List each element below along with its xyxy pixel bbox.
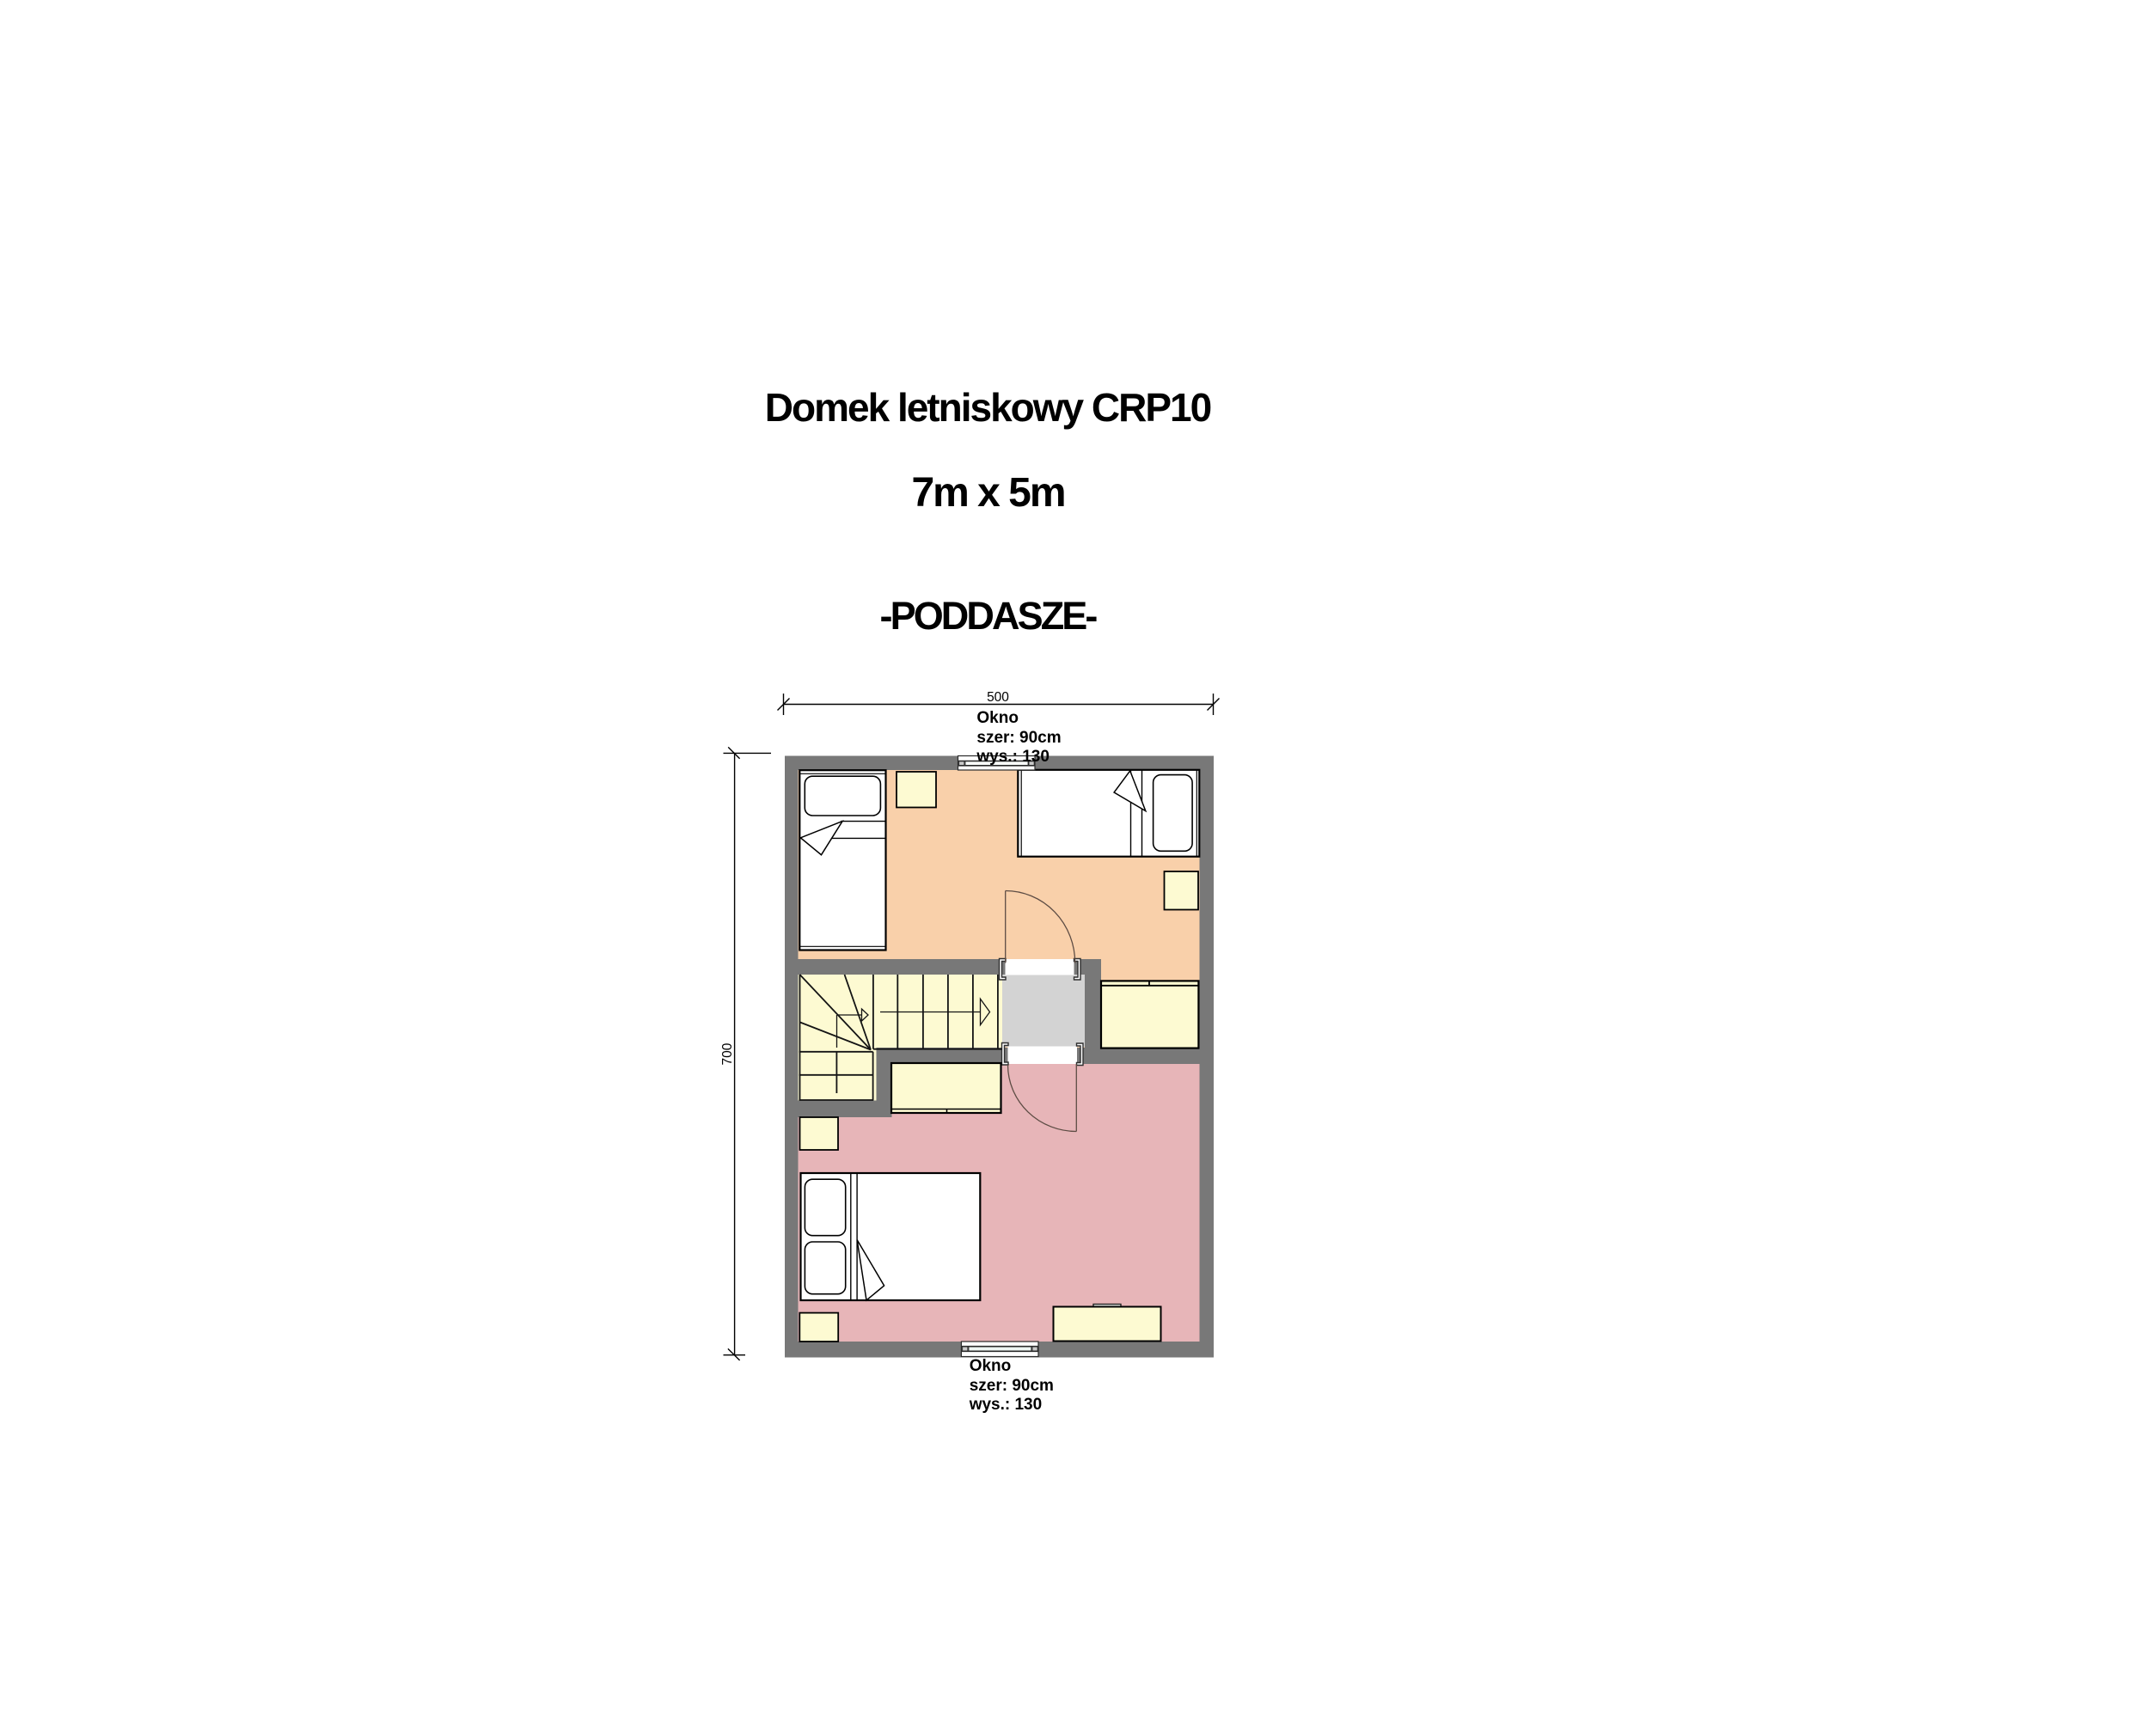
svg-text:szer: 90cm: szer: 90cm	[970, 1377, 1054, 1395]
svg-text:500: 500	[987, 690, 1009, 705]
svg-text:7m x 5m: 7m x 5m	[911, 470, 1064, 516]
svg-text:700: 700	[720, 1042, 735, 1065]
svg-text:wys.: 130: wys.: 130	[969, 1396, 1043, 1414]
svg-text:szer: 90cm: szer: 90cm	[976, 729, 1061, 747]
svg-text:Okno: Okno	[976, 709, 1019, 727]
svg-text:wys.: 130: wys.: 130	[976, 748, 1050, 766]
svg-text:Okno: Okno	[970, 1357, 1012, 1375]
svg-text:Domek letniskowy CRP10: Domek letniskowy CRP10	[765, 385, 1211, 430]
svg-text:-PODDASZE-: -PODDASZE-	[880, 594, 1098, 638]
